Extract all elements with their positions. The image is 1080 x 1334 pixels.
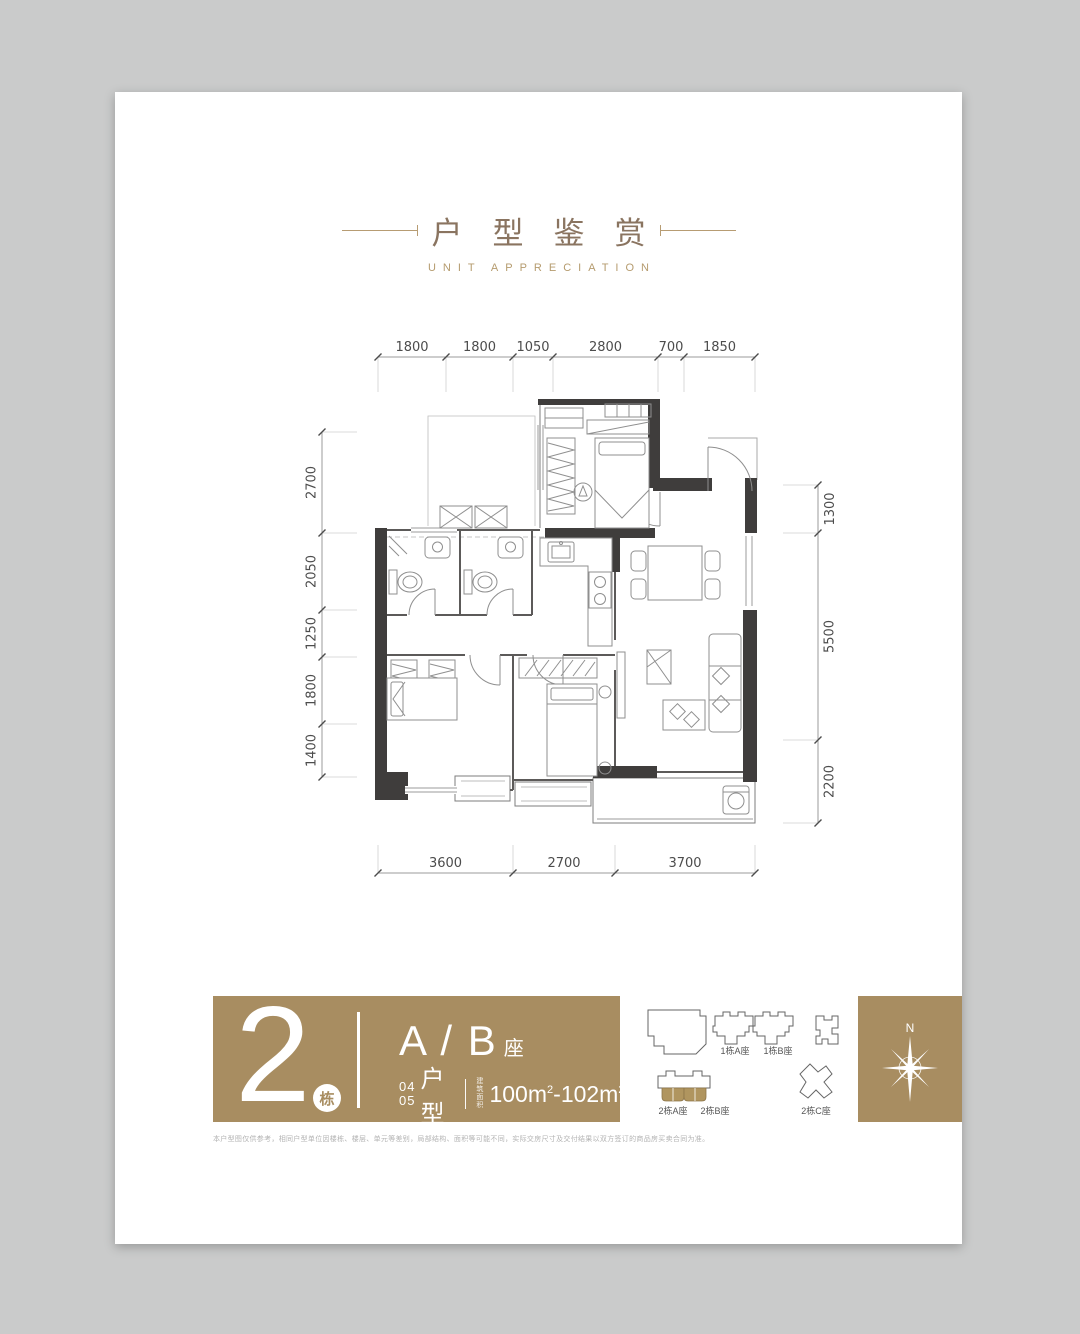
- site-label-1a: 1栋A座: [720, 1045, 749, 1056]
- compass-north-label: N: [906, 1021, 915, 1035]
- dim-chain-left: 2700 2050 1250 1800 1400: [305, 429, 358, 781]
- area-sup1: 2: [547, 1084, 553, 1096]
- dim-left-3: 1250: [305, 617, 320, 650]
- toilet-icon: [464, 570, 472, 594]
- footprint-2c: [800, 1064, 832, 1098]
- area-v2: 102m: [561, 1081, 619, 1107]
- poster-background: 户型鉴赏 UNIT APPRECIATION 1800 1800 1050 28…: [0, 0, 1080, 1334]
- dim-top-4: 2800: [589, 340, 622, 355]
- north-bedroom-furniture: [545, 404, 651, 528]
- site-plan-drawing: 1栋A座 1栋B座 2栋A座 2栋B座 2栋C座: [620, 996, 858, 1122]
- dim-left-1: 2700: [305, 466, 320, 499]
- dim-top-2: 1800: [463, 340, 496, 355]
- site-label-2a: 2栋A座: [658, 1105, 687, 1116]
- stove-icon: [589, 572, 611, 608]
- title-decor-line-right: [660, 230, 736, 231]
- compass-icon: N: [858, 996, 962, 1122]
- nightstand-icon: [599, 686, 611, 698]
- site-label-1b: 1栋B座: [763, 1045, 792, 1056]
- dim-chain-bottom: 3600 2700 3700: [375, 845, 759, 877]
- bed-icon: [595, 438, 649, 528]
- living-furniture: [617, 634, 741, 732]
- unit-numbers: 04 05: [399, 1080, 415, 1108]
- dim-left-2: 2050: [305, 555, 320, 588]
- footprint-unlabeled-2: [816, 1016, 838, 1044]
- sofa-icon: [709, 634, 741, 732]
- compass-rose: [882, 1036, 938, 1102]
- dim-chain-top: 1800 1800 1050 2800 700 1850: [375, 340, 759, 392]
- bathroom2-fixtures: [464, 537, 523, 594]
- dim-bottom-1: 3600: [429, 856, 462, 871]
- building-unit-badge: 栋: [313, 1084, 341, 1112]
- bed-icon: [387, 678, 457, 720]
- furniture: [387, 404, 749, 814]
- unit-number-bottom: 05: [399, 1094, 415, 1108]
- unit-divider: [465, 1079, 466, 1109]
- dim-chain-right: 1300 5500 2200: [783, 482, 838, 827]
- coffee-table-icon: [663, 700, 705, 730]
- site-label-2c: 2栋C座: [801, 1105, 831, 1116]
- dining-furniture: [631, 546, 720, 600]
- footprint-2ab: [658, 1071, 710, 1088]
- tv-cabinet-icon: [617, 652, 625, 718]
- area-value: 100m2-102m2: [489, 1081, 624, 1108]
- area-sep: -: [553, 1081, 561, 1107]
- highlighted-units: [662, 1088, 706, 1101]
- block-label: A / B座: [399, 1020, 524, 1062]
- dim-bottom-2: 2700: [547, 856, 580, 871]
- bedroom2-furniture: [387, 660, 457, 720]
- page-subtitle: UNIT APPRECIATION: [115, 262, 969, 274]
- area-v1: 100m: [489, 1081, 547, 1107]
- dim-bottom-3: 3700: [668, 856, 701, 871]
- site-plan-panel: 1栋A座 1栋B座 2栋A座 2栋B座 2栋C座: [620, 996, 858, 1122]
- footprint-1a: [713, 1012, 753, 1044]
- title-decor-line-left: [342, 230, 418, 231]
- dim-top-5: 700: [659, 340, 684, 355]
- bed-icon: [547, 684, 597, 776]
- floorplan-drawing: 1800 1800 1050 2800 700 1850 2700 2050 1…: [295, 340, 845, 890]
- poster-page: 户型鉴赏 UNIT APPRECIATION 1800 1800 1050 28…: [115, 92, 962, 1244]
- disclaimer-text: 本户型图仅供参考，相同户型单位因楼栋、楼层、单元等差别，局部结构、面积等可能不同…: [213, 1134, 853, 1144]
- dim-top-1: 1800: [395, 340, 428, 355]
- balcony-fixtures: [723, 786, 749, 814]
- compass-panel: N: [858, 996, 962, 1122]
- dim-top-6: 1850: [703, 340, 736, 355]
- sink-icon: [425, 537, 450, 558]
- building-unit-label: 栋: [319, 1088, 334, 1109]
- block-suffix: 座: [504, 1038, 524, 1060]
- title-block: 户型鉴赏 UNIT APPRECIATION: [115, 208, 962, 274]
- closet-boxes: [440, 506, 507, 528]
- dim-right-1: 1300: [823, 492, 838, 525]
- site-label-2b: 2栋B座: [700, 1105, 729, 1116]
- footprint-1b: [753, 1012, 793, 1044]
- page-title: 户型鉴赏: [432, 208, 676, 253]
- banner-building-info: 2 栋 A / B座 04 05 户型 建筑面积 100m2-102m2: [213, 996, 620, 1122]
- dining-table-icon: [648, 546, 702, 600]
- dim-right-2: 5500: [823, 620, 838, 653]
- toilet-icon: [389, 570, 397, 594]
- dim-left-5: 1400: [305, 734, 320, 767]
- block-name: A / B: [399, 1017, 498, 1064]
- unit-number-top: 04: [399, 1080, 415, 1094]
- unit-type-label: 户型: [420, 1059, 453, 1129]
- dim-left-4: 1800: [305, 674, 320, 707]
- title-row: 户型鉴赏: [115, 208, 962, 253]
- washer-icon: [723, 786, 749, 814]
- kitchen-fixtures: [540, 538, 612, 646]
- dim-top-3: 1050: [516, 340, 549, 355]
- unit-info-row: 04 05 户型 建筑面积 100m2-102m2: [399, 1078, 624, 1110]
- dim-right-3: 2200: [823, 765, 838, 798]
- area-prefix-label: 建筑面积: [476, 1078, 486, 1110]
- footprint-unlabeled-1: [648, 1010, 706, 1054]
- banner-divider: [357, 1012, 360, 1108]
- building-number: 2: [235, 986, 311, 1122]
- bathroom1-fixtures: [389, 536, 450, 594]
- bedroom3-furniture: [519, 658, 611, 776]
- sink-icon: [498, 537, 523, 558]
- floorplan: 1800 1800 1050 2800 700 1850 2700 2050 1…: [295, 340, 845, 890]
